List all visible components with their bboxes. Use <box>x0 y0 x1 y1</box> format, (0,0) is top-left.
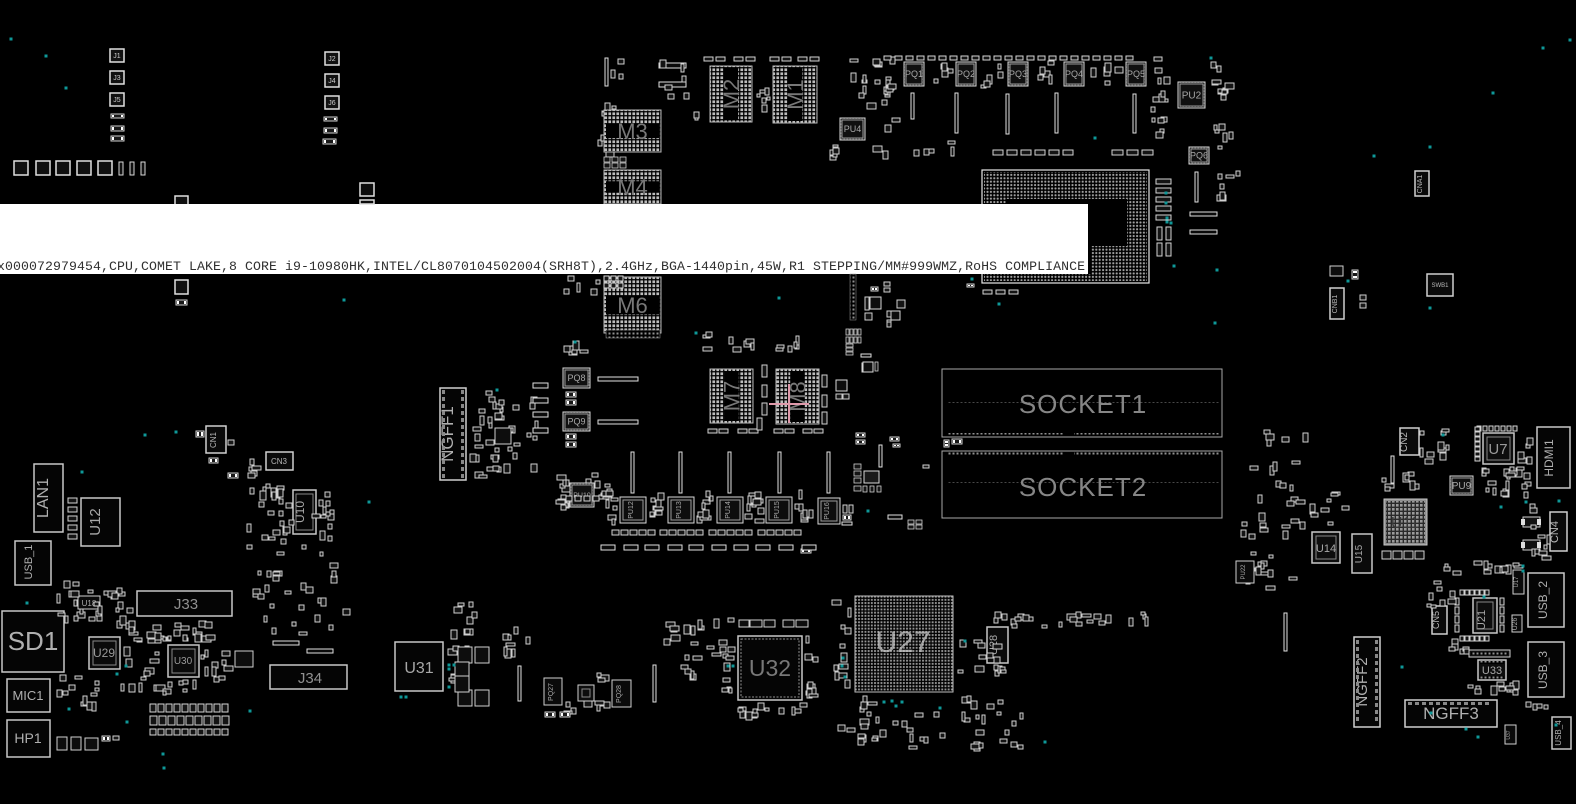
svg-text:U21: U21 <box>1476 610 1488 630</box>
svg-text:CNA1: CNA1 <box>1417 175 1424 194</box>
svg-text:PQ1: PQ1 <box>905 69 923 79</box>
svg-text:M2: M2 <box>719 79 744 110</box>
svg-text:J2: J2 <box>328 56 336 63</box>
svg-text:PU13: PU13 <box>676 501 683 519</box>
svg-text:U12: U12 <box>87 508 104 536</box>
svg-text:U37: U37 <box>1506 730 1512 739</box>
svg-text:PQ4: PQ4 <box>1065 69 1083 79</box>
svg-text:U26: U26 <box>1512 617 1519 630</box>
svg-text:U32: U32 <box>749 655 791 681</box>
svg-text:HDMI1: HDMI1 <box>1542 439 1556 477</box>
svg-text:CN3: CN3 <box>271 457 288 466</box>
svg-text:CN4: CN4 <box>1549 521 1561 543</box>
svg-text:PQ2: PQ2 <box>957 69 975 79</box>
svg-text:PU15: PU15 <box>774 501 781 519</box>
svg-text:J4: J4 <box>328 78 336 85</box>
svg-text:PQ8: PQ8 <box>567 373 585 383</box>
svg-text:PU16: PU16 <box>824 502 831 520</box>
svg-text:U17: U17 <box>1514 576 1520 588</box>
svg-text:PU4: PU4 <box>844 124 862 134</box>
svg-text:J1: J1 <box>113 53 121 60</box>
svg-text:SD1: SD1 <box>8 626 59 656</box>
svg-text:CNB1: CNB1 <box>1332 295 1339 314</box>
svg-text:PQ5: PQ5 <box>1127 69 1145 79</box>
svg-text:U10: U10 <box>293 501 307 523</box>
svg-text:U7: U7 <box>1488 441 1507 458</box>
svg-text:M4: M4 <box>617 175 648 200</box>
svg-text:U31: U31 <box>404 660 433 677</box>
svg-text:CN1: CN1 <box>209 431 218 448</box>
svg-text:SOCKET2: SOCKET2 <box>1019 472 1147 502</box>
svg-text:U33: U33 <box>1482 665 1502 677</box>
svg-text:PQ27: PQ27 <box>548 683 555 701</box>
svg-text:J34: J34 <box>298 670 322 687</box>
svg-text:PU22: PU22 <box>1241 564 1247 580</box>
svg-text:PQ3: PQ3 <box>1009 69 1027 79</box>
svg-text:SWB1: SWB1 <box>1431 283 1449 289</box>
svg-text:USB_1: USB_1 <box>23 545 35 580</box>
svg-text:PU12: PU12 <box>628 501 635 519</box>
svg-text:J5: J5 <box>113 97 121 104</box>
svg-text:USB_2: USB_2 <box>1536 581 1550 619</box>
svg-text:MIC1: MIC1 <box>12 688 43 703</box>
svg-text:HP1: HP1 <box>14 730 41 746</box>
svg-text:PU2: PU2 <box>1182 91 1202 102</box>
svg-text:U29: U29 <box>93 646 115 660</box>
svg-text:USB_3: USB_3 <box>1536 651 1550 689</box>
svg-text:J3: J3 <box>113 75 121 82</box>
svg-text:M7: M7 <box>719 381 744 412</box>
svg-text:U30: U30 <box>174 656 193 667</box>
svg-text:J6: J6 <box>328 100 336 107</box>
svg-text:PQ6: PQ6 <box>1190 151 1208 161</box>
svg-text:M3: M3 <box>617 119 648 144</box>
svg-text:U11: U11 <box>1391 515 1419 532</box>
svg-text:U14: U14 <box>1316 543 1336 555</box>
svg-text:PU9: PU9 <box>1452 481 1472 492</box>
svg-text:PQ28: PQ28 <box>616 685 623 703</box>
svg-text:PU14: PU14 <box>725 501 732 519</box>
svg-text:M1: M1 <box>783 79 808 110</box>
svg-text:SOCKET1: SOCKET1 <box>1019 389 1147 419</box>
svg-text:CN5: CN5 <box>1431 611 1441 629</box>
svg-text:U27: U27 <box>875 626 930 659</box>
svg-text:M6: M6 <box>617 293 648 318</box>
svg-text:LAN1: LAN1 <box>35 478 52 518</box>
svg-text:CN2: CN2 <box>1399 432 1410 452</box>
svg-text:PQ9: PQ9 <box>567 417 585 427</box>
svg-text:J33: J33 <box>174 596 198 613</box>
svg-text:x000072979454,CPU,COMET LAKE,8: x000072979454,CPU,COMET LAKE,8 CORE i9-1… <box>0 259 1085 274</box>
svg-text:U15: U15 <box>1354 544 1365 563</box>
svg-text:NGFF1: NGFF1 <box>438 406 457 462</box>
